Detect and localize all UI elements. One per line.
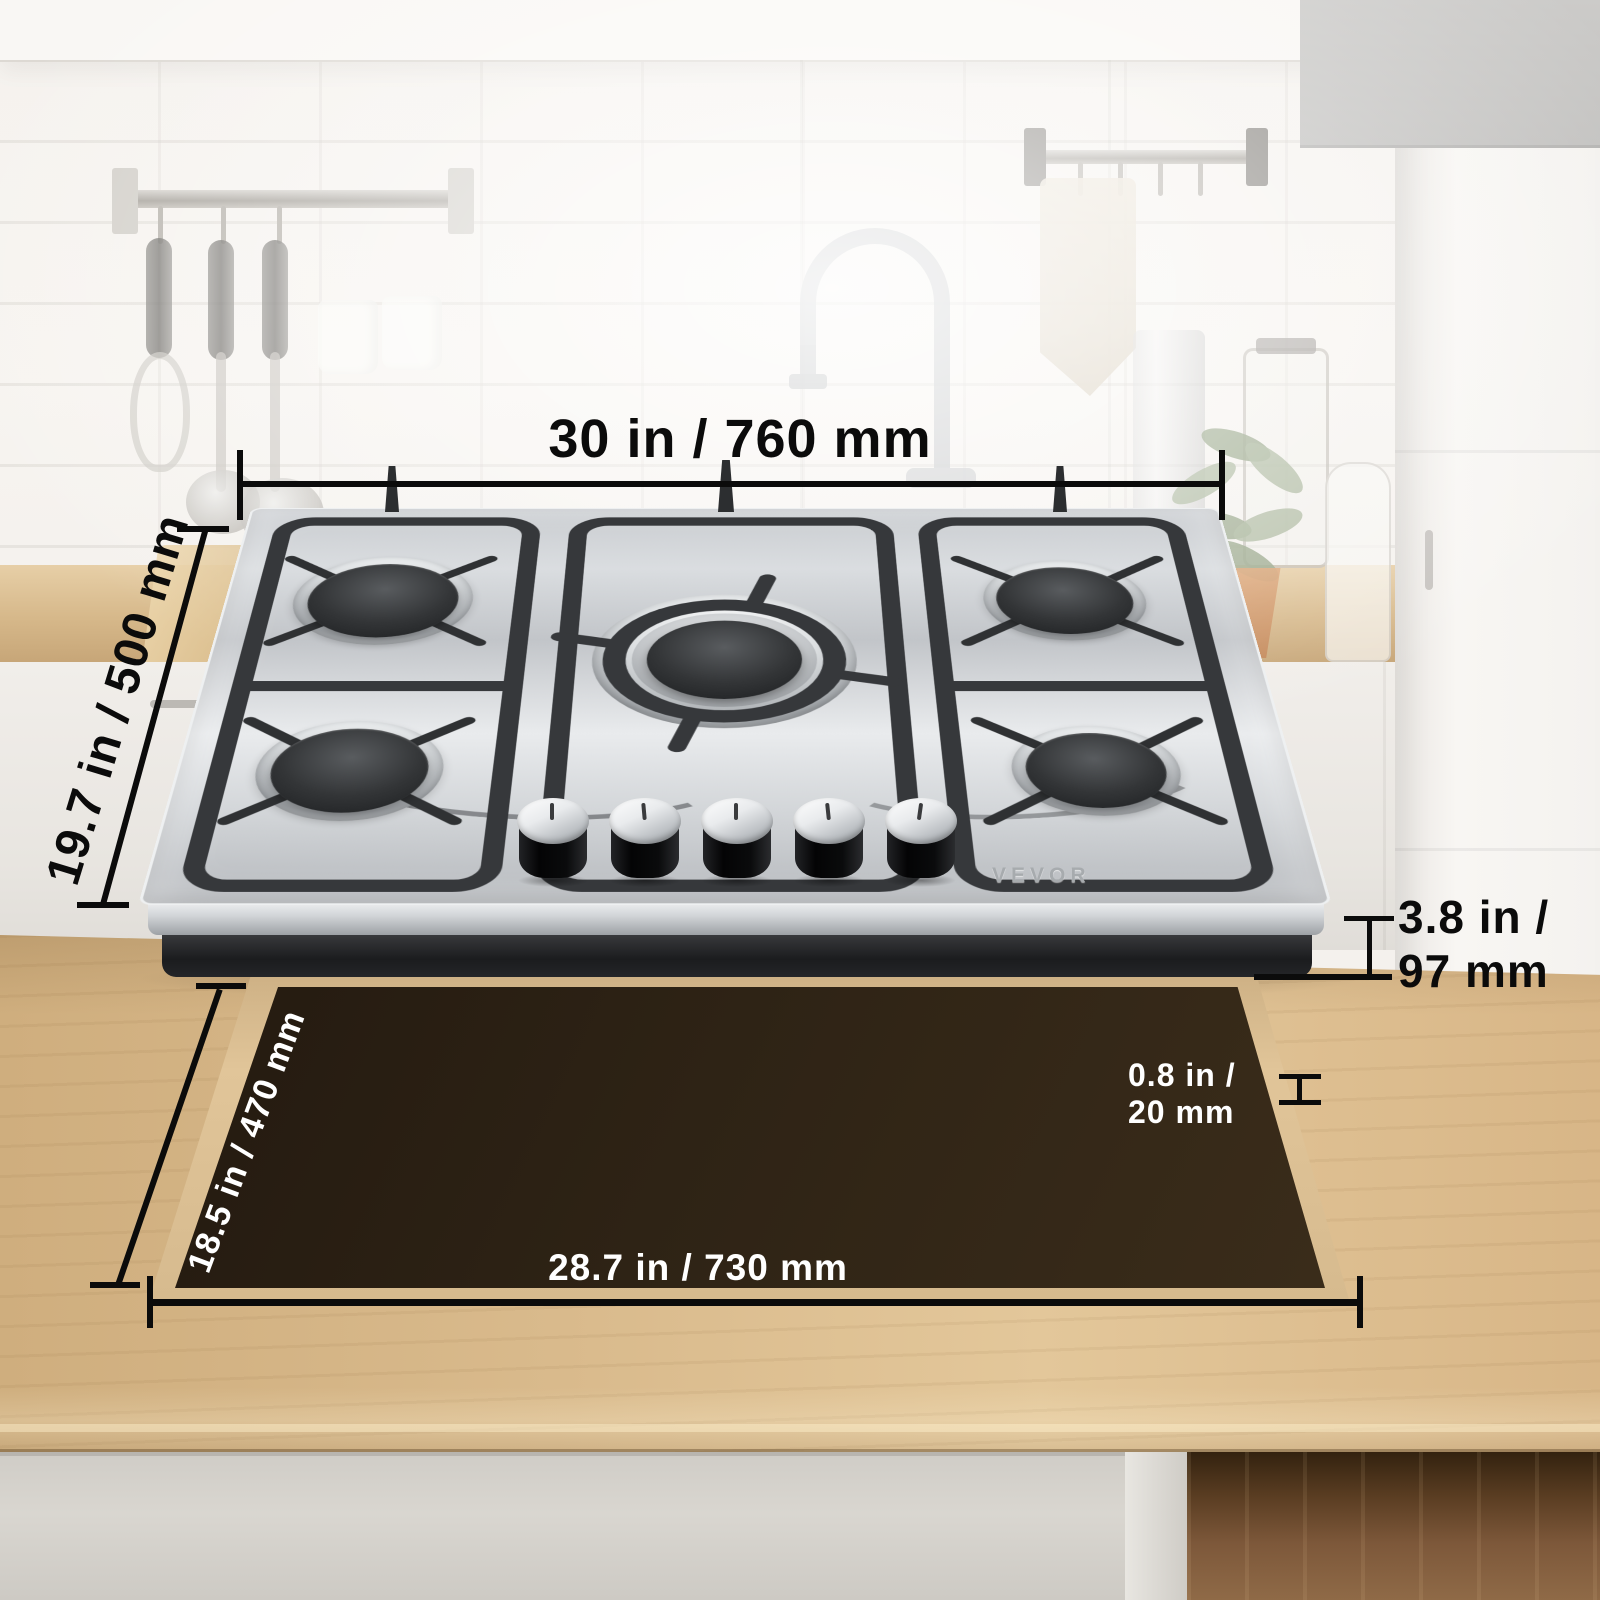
upper-cabinets: [0, 0, 1395, 62]
rail-hook: [1158, 162, 1163, 196]
faucet-tip: [789, 374, 827, 389]
utensil-rail-right: [1032, 150, 1258, 164]
cabinet-handle: [1425, 530, 1433, 590]
cooktop-height-line2: 97 mm: [1398, 944, 1549, 998]
cooktop-height-line: [1367, 918, 1372, 980]
cabinet-side-panel: [1125, 1452, 1187, 1600]
thickness-line1: 0.8 in /: [1128, 1057, 1236, 1094]
thickness-line2: 20 mm: [1128, 1094, 1236, 1131]
cutout-width-tick: [1357, 1276, 1363, 1328]
rail-mount: [112, 168, 138, 234]
glass-jar-lid: [1256, 338, 1316, 354]
cabinet-seam: [1395, 848, 1600, 851]
spoon-handle: [208, 240, 234, 360]
cooktop-depth-tick: [77, 902, 129, 908]
cooktop-height-tick: [1254, 974, 1392, 980]
under-counter-cabinet: [0, 1452, 1125, 1600]
cooktop-width-tick: [237, 450, 243, 520]
utensil-rail-left: [118, 190, 470, 208]
rail-mount: [1246, 128, 1268, 186]
burner-front-left: [244, 721, 451, 821]
rail-hook: [1198, 162, 1203, 196]
cooktop-base: [162, 933, 1312, 977]
control-knob-1: [516, 798, 590, 890]
thickness-tick: [1279, 1074, 1321, 1079]
cooktop-height-label: 3.8 in / 97 mm: [1398, 890, 1549, 998]
cutout-width-label: 28.7 in / 730 mm: [458, 1247, 938, 1289]
cutout-hole: [175, 987, 1325, 1288]
control-knob-5: [884, 798, 958, 890]
rail-mount: [448, 168, 474, 234]
cutout-width-line: [150, 1299, 1363, 1306]
whisk-handle: [146, 238, 172, 358]
cutout-width-tick: [147, 1276, 153, 1328]
ladle-stem: [270, 352, 280, 492]
control-knob-2: [608, 798, 682, 890]
cooktop-height-line1: 3.8 in /: [1398, 890, 1549, 944]
milk-bottle: [1325, 462, 1391, 662]
wood-floor: [1187, 1452, 1600, 1600]
grate-bar: [934, 681, 1227, 691]
rail-mount: [1024, 128, 1046, 186]
cooktop-width-line: [240, 481, 1222, 487]
cabinet-seam: [1395, 450, 1600, 453]
knob-indicator: [550, 803, 554, 820]
cooktop-dimension-diagram: VEVOR 30 in / 760 mm 19.7 in / 500 mm 3.…: [0, 0, 1600, 1600]
thickness-tick: [1279, 1100, 1321, 1105]
counter-front-highlight: [0, 1424, 1600, 1432]
knob-indicator: [734, 803, 738, 820]
cooktop-height-tick: [1344, 916, 1394, 921]
control-knob-4: [792, 798, 866, 890]
ladle-handle: [262, 240, 288, 360]
rail-hook: [277, 206, 282, 244]
center-burner-cap: [645, 621, 804, 699]
cutout-depth-tick: [90, 1282, 140, 1288]
thickness-label: 0.8 in / 20 mm: [1128, 1057, 1236, 1131]
hanging-mug: [318, 300, 378, 374]
rail-hook: [221, 206, 226, 244]
burner-back-left: [282, 557, 479, 645]
burner-front-right: [1006, 726, 1191, 816]
hanging-mug: [382, 296, 442, 370]
cutout-depth-tick: [196, 983, 246, 989]
cooktop-width-label: 30 in / 760 mm: [430, 408, 1050, 470]
brand-logo: VEVOR: [992, 864, 1091, 888]
cooktop-width-tick: [1219, 450, 1225, 520]
grate-bar: [231, 681, 524, 691]
burner-back-right: [978, 561, 1155, 640]
whisk-icon: [130, 352, 190, 472]
control-knob-3: [700, 798, 774, 890]
gray-upper-cabinet: [1300, 0, 1600, 148]
